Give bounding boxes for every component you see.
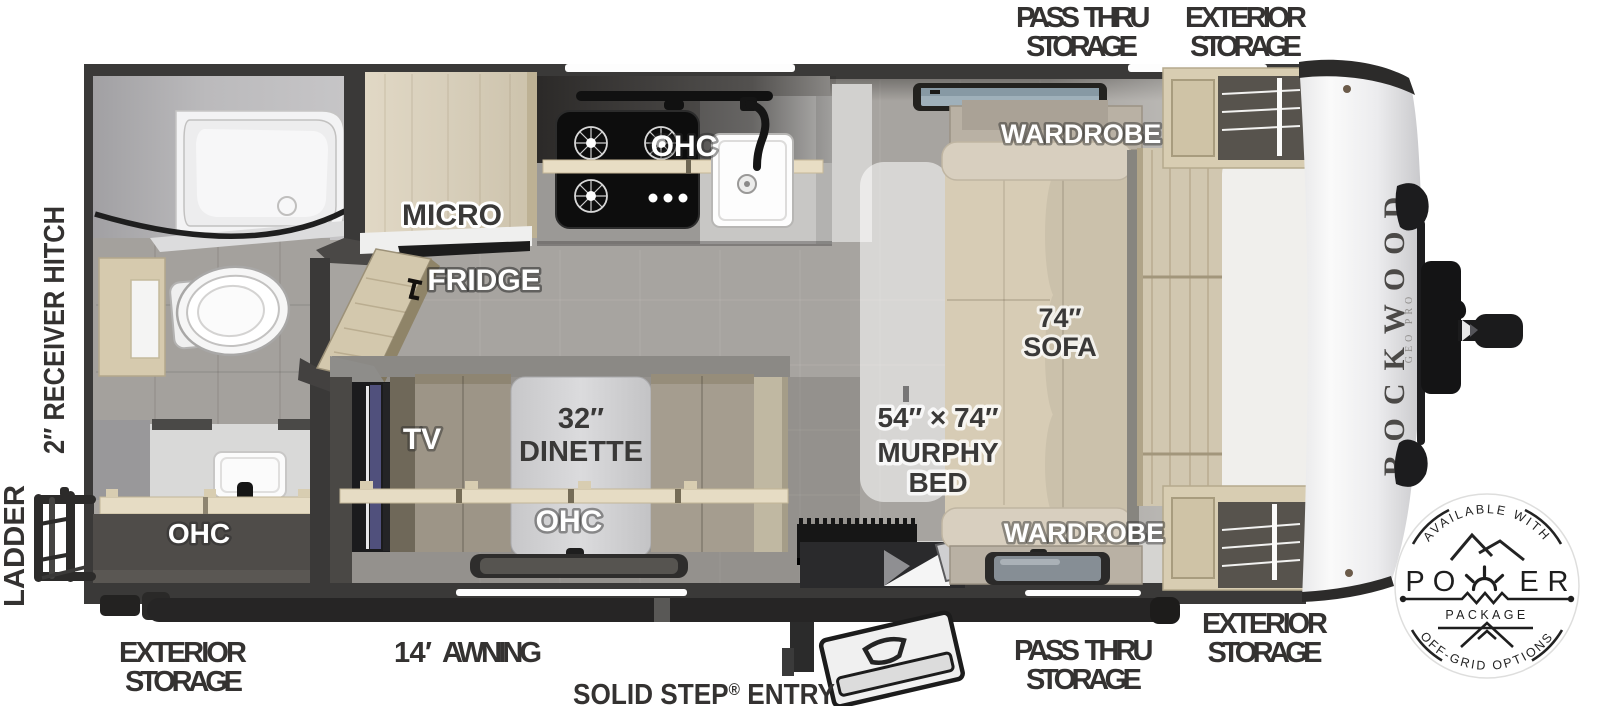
svg-text:WARDROBE: WARDROBE xyxy=(1001,119,1162,149)
svg-text:SOLID STEP® ENTRY: SOLID STEP® ENTRY xyxy=(573,679,835,706)
svg-text:PASS: PASS xyxy=(1014,635,1080,667)
svg-text:MURPHY: MURPHY xyxy=(877,437,999,468)
svg-text:32″: 32″ xyxy=(558,403,604,435)
svg-text:EXTERIOR: EXTERIOR xyxy=(1202,608,1328,640)
svg-text:FRIDGE: FRIDGE xyxy=(427,264,540,297)
svg-text:BED: BED xyxy=(908,467,967,498)
svg-text:74″: 74″ xyxy=(1039,303,1082,333)
svg-text:OHC: OHC xyxy=(168,518,230,549)
svg-text:PASS: PASS xyxy=(1016,2,1080,34)
svg-text:2″ RECEIVER HITCH: 2″ RECEIVER HITCH xyxy=(39,206,71,454)
svg-text:MICRO: MICRO xyxy=(402,199,502,232)
svg-text:EXTERIOR: EXTERIOR xyxy=(119,637,247,669)
svg-text:EXTERIOR: EXTERIOR xyxy=(1185,2,1307,34)
svg-text:PACKAGE: PACKAGE xyxy=(1445,608,1528,622)
svg-text:R: R xyxy=(1548,566,1569,598)
svg-text:OHC: OHC xyxy=(651,130,718,163)
svg-text:THRU: THRU xyxy=(1085,635,1154,667)
svg-text:THRU: THRU xyxy=(1084,2,1151,34)
svg-text:DINETTE: DINETTE xyxy=(519,436,643,468)
svg-text:14′: 14′ xyxy=(394,637,432,669)
svg-text:STORAGE: STORAGE xyxy=(1026,31,1138,63)
svg-text:P: P xyxy=(1405,566,1424,598)
svg-text:STORAGE: STORAGE xyxy=(125,666,243,698)
svg-text:AWNING: AWNING xyxy=(442,637,542,669)
svg-text:LADDER: LADDER xyxy=(0,485,31,607)
svg-text:SOFA: SOFA xyxy=(1023,332,1097,362)
svg-text:STORAGE: STORAGE xyxy=(1026,664,1142,696)
svg-text:TV: TV xyxy=(403,423,441,456)
svg-text:E: E xyxy=(1519,566,1538,598)
svg-text:STORAGE: STORAGE xyxy=(1190,31,1302,63)
svg-text:WARDROBE: WARDROBE xyxy=(1004,518,1165,548)
svg-text:54″ × 74″: 54″ × 74″ xyxy=(877,402,998,433)
svg-text:STORAGE: STORAGE xyxy=(1208,637,1323,669)
svg-text:GEO PRO: GEO PRO xyxy=(1404,293,1415,364)
svg-text:O: O xyxy=(1433,566,1456,598)
svg-text:OHC: OHC xyxy=(536,505,603,538)
